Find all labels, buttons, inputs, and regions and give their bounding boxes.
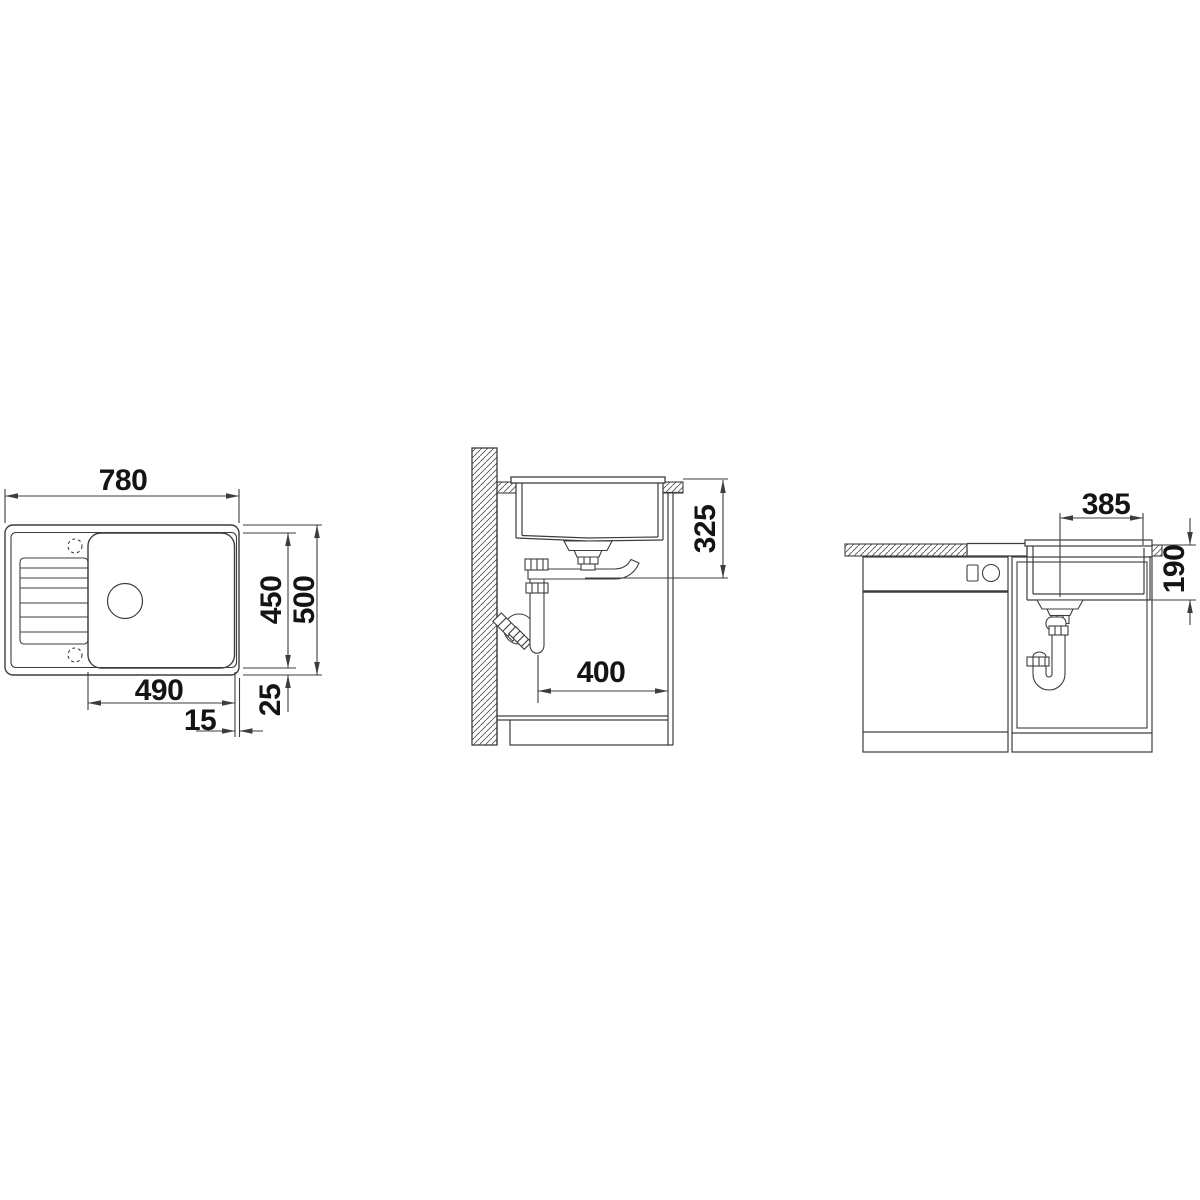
dimension-385 (1060, 513, 1143, 597)
sink-bowl (88, 533, 235, 668)
dim-label-bowl-depth: 190 (1160, 545, 1190, 594)
drain-hole (108, 584, 143, 619)
sink-flange (511, 477, 665, 483)
drain-trap-side (493, 541, 639, 653)
dim-label-drain-to-edge: 385 (1082, 490, 1131, 520)
bowl-section (516, 483, 663, 541)
drawing-linework (0, 0, 1200, 1200)
dim-label-cabinet-clearance: 400 (577, 658, 626, 688)
sink-flange-front (1025, 540, 1152, 546)
countertop-front (845, 544, 1027, 557)
dim-label-bowl-width: 490 (135, 676, 184, 706)
dim-label-inner-depth: 450 (257, 576, 287, 625)
tap-hole-bottom-icon (68, 648, 82, 662)
dim-label-overall-width: 780 (99, 466, 148, 496)
side-section-view (472, 448, 728, 745)
bowl-section-front (1027, 546, 1150, 600)
tap-hole-top-icon (68, 539, 82, 553)
drain-trap-front (1027, 600, 1083, 690)
drainboard (20, 558, 88, 644)
appliance-button-icon (967, 565, 978, 581)
dim-label-drain-depth: 325 (691, 505, 721, 554)
dim-label-rim-offset-right: 15 (184, 706, 216, 736)
technical-drawing-canvas: 780 490 15 450 500 25 325 400 385 190 (0, 0, 1200, 1200)
countertop-section-right (663, 482, 683, 493)
front-view (845, 513, 1196, 752)
left-cabinet (863, 557, 1008, 752)
dim-label-rim-offset-bottom: 25 (256, 684, 286, 716)
wall-section (472, 448, 497, 745)
sink-rim (11, 533, 237, 668)
dim-label-overall-depth: 500 (290, 576, 320, 625)
appliance-knob-icon (983, 565, 1000, 582)
sink-outline (5, 525, 239, 675)
drainboard-grooves (20, 568, 88, 632)
